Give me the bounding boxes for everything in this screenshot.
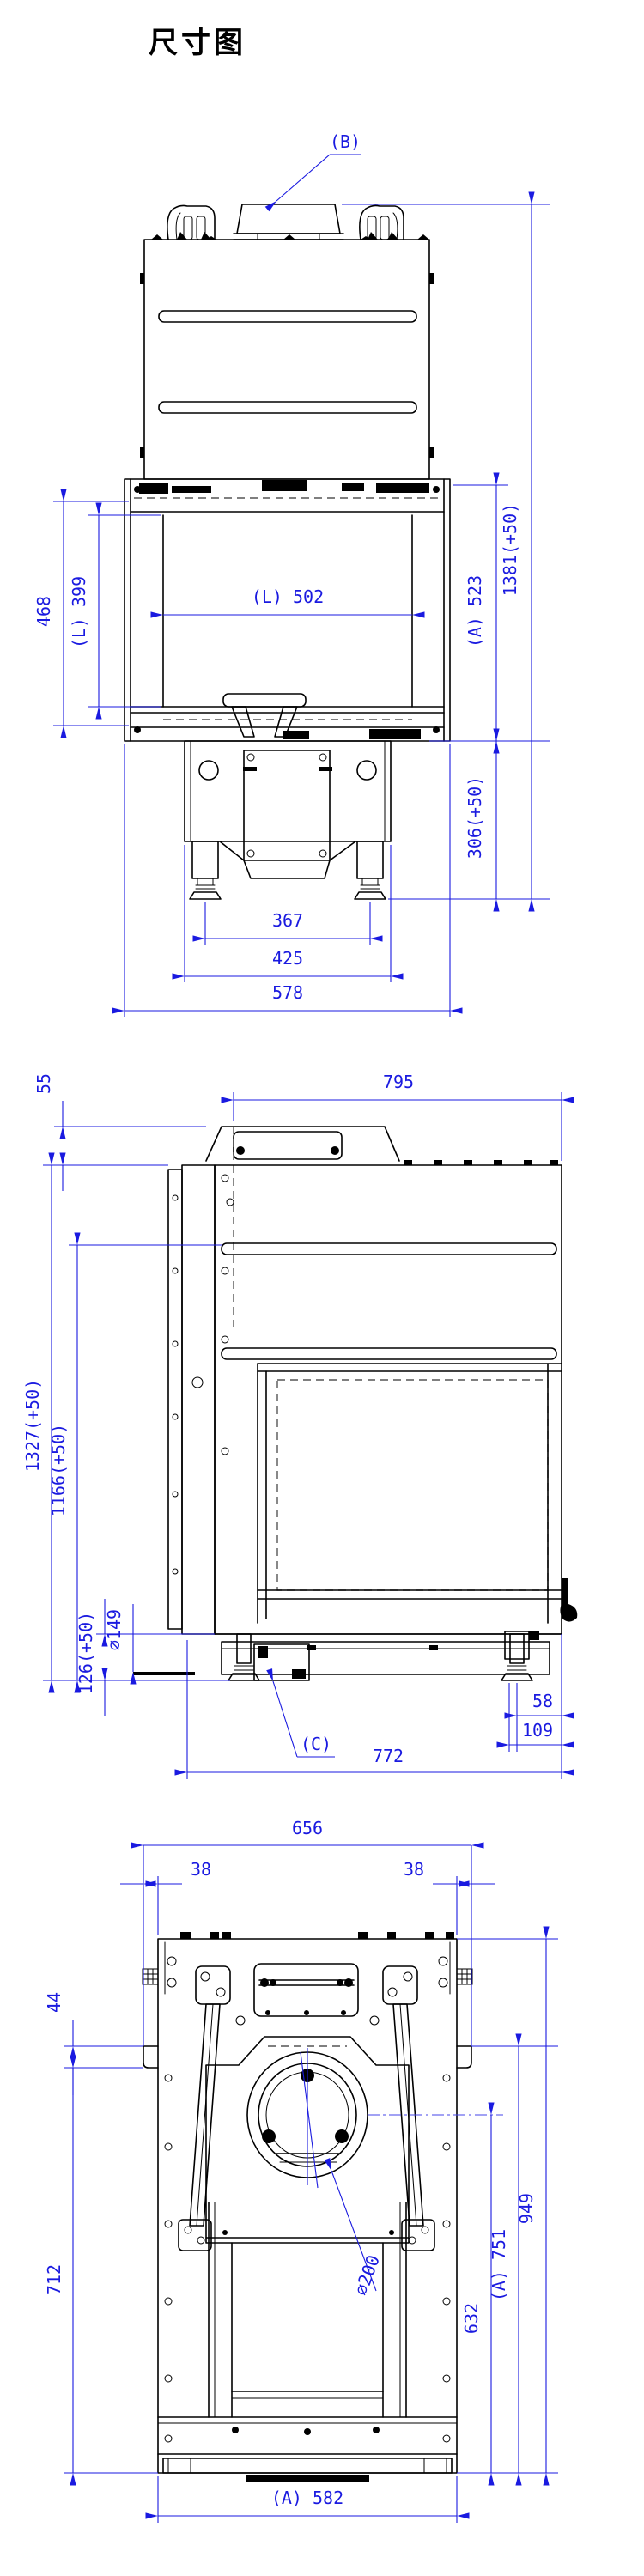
front-glass-width-label: (L) 502 xyxy=(252,586,324,607)
front-feet-span-label: 367 xyxy=(272,910,303,931)
bottom-overall-length-label: 949 xyxy=(516,2193,537,2224)
side-total-height-label: 1327(+50) xyxy=(22,1379,43,1472)
side-vent-height-label: 1166(+50) xyxy=(48,1424,69,1516)
side-valve-ref-label: (C) xyxy=(301,1734,331,1754)
front-flue-collar-outline xyxy=(234,204,343,240)
front-base-height-label: 306(+50) xyxy=(465,776,485,859)
front-view: (B) (A) 523 306(+50) 1381(+50) xyxy=(33,131,550,1017)
bottom-latch-right xyxy=(457,1969,472,1984)
side-view: 55 795 1327(+50) 1166(+50) 126(+50) xyxy=(22,1072,577,1779)
bottom-lower-rails xyxy=(209,2202,406,2417)
side-depth-top-label: 795 xyxy=(383,1072,414,1092)
side-body xyxy=(168,1160,562,1634)
front-firebox-surround xyxy=(125,479,450,741)
front-foot-right xyxy=(355,878,386,899)
side-foot-offset-label: 58 xyxy=(532,1691,553,1711)
bottom-flue-diameter-label: ∅200 xyxy=(350,2252,384,2298)
front-clamp-left xyxy=(167,205,215,240)
front-clamp-right xyxy=(360,205,404,240)
bottom-tab-left-label: 38 xyxy=(191,1859,211,1880)
front-total-height-label: 1381(+50) xyxy=(500,503,520,596)
side-collar-height-label: 55 xyxy=(33,1073,54,1094)
bottom-width-a-label: (A) 582 xyxy=(271,2488,343,2508)
bottom-body-length-label: 712 xyxy=(44,2264,64,2295)
bottom-base-band xyxy=(158,2417,457,2482)
bottom-flue-offset-label: 632 xyxy=(461,2303,482,2334)
dimension-drawing-page: 尺寸图 xyxy=(0,0,644,2576)
front-foot-left xyxy=(190,878,221,899)
bottom-tab-right xyxy=(457,2046,471,2068)
front-opening-height-label: 468 xyxy=(33,596,54,627)
front-pedestal-width-label: 425 xyxy=(272,948,303,969)
front-overall-width-label: 578 xyxy=(272,982,303,1003)
side-base xyxy=(133,1631,562,1680)
side-foot-right xyxy=(501,1631,539,1680)
dimension-drawing: (B) (A) 523 306(+50) 1381(+50) xyxy=(0,0,644,2576)
bottom-tab-left xyxy=(143,2046,158,2068)
front-glass-height-label: (L) 399 xyxy=(69,576,89,648)
side-base-clearance-label: 126(+50) xyxy=(76,1612,96,1694)
side-foot-edge-offset-label: 109 xyxy=(522,1720,553,1741)
bottom-length-a-label: (A) 751 xyxy=(489,2229,509,2301)
bottom-flue-panel xyxy=(206,2037,409,2243)
side-flue-collar-outline xyxy=(206,1127,399,1327)
bottom-top-width-label: 656 xyxy=(292,1818,323,1838)
bottom-tab-height-label: 44 xyxy=(44,1992,64,2013)
front-door-handle xyxy=(223,694,306,737)
front-upper-body xyxy=(140,234,434,479)
side-overall-depth-label: 772 xyxy=(373,1746,404,1766)
side-door xyxy=(258,1364,577,1623)
bottom-handle-cutout xyxy=(254,1964,358,2016)
bottom-tab-right-label: 38 xyxy=(404,1859,424,1880)
bottom-brace-left xyxy=(179,1966,230,2251)
bottom-latch-left xyxy=(143,1969,158,1984)
side-inlet-diameter-label: ∅149 xyxy=(104,1609,125,1650)
bottom-view: 656 38 38 44 712 xyxy=(44,1818,558,2523)
front-pedestal xyxy=(185,741,391,899)
side-air-inlet-edge xyxy=(133,1672,195,1675)
front-view-dimensions: (B) (A) 523 306(+50) 1381(+50) xyxy=(33,131,550,1017)
front-firebox-height-label: (A) 523 xyxy=(465,575,485,647)
front-flue-ref-label: (B) xyxy=(330,131,361,152)
